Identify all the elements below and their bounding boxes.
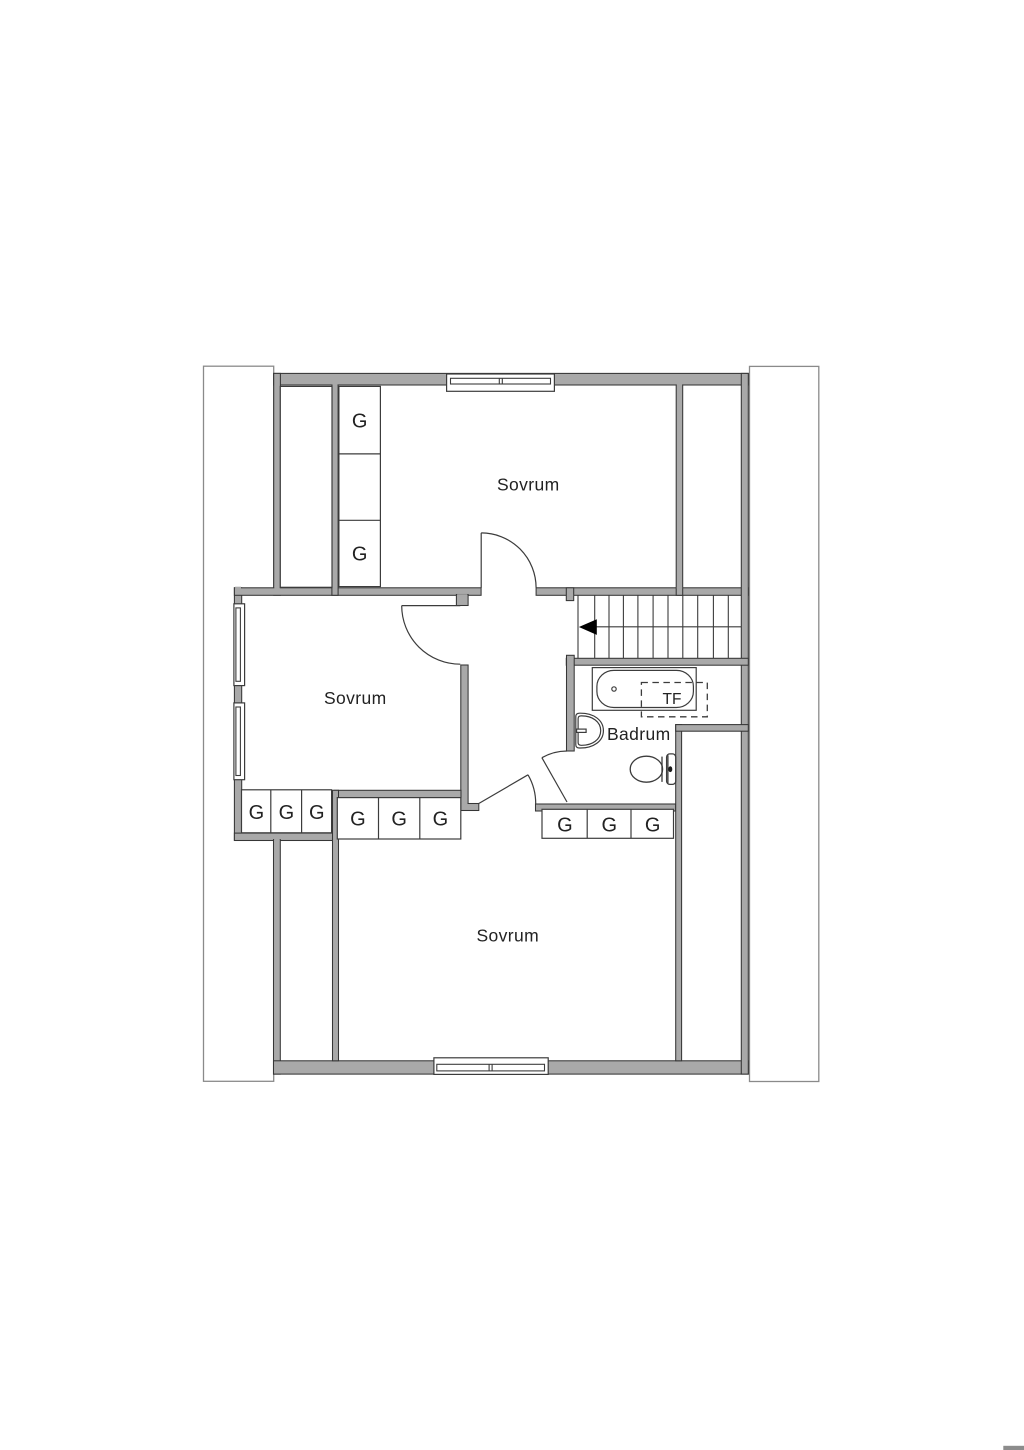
svg-text:G: G: [557, 814, 573, 836]
svg-text:Sovrum: Sovrum: [476, 925, 539, 945]
svg-text:G: G: [279, 802, 295, 824]
svg-text:G: G: [249, 802, 265, 824]
svg-text:G: G: [391, 808, 407, 830]
svg-text:Sovrum: Sovrum: [497, 474, 560, 494]
svg-text:G: G: [309, 802, 325, 824]
svg-text:G: G: [352, 543, 368, 565]
svg-text:G: G: [350, 808, 366, 830]
svg-text:G: G: [645, 814, 661, 836]
svg-text:TF: TF: [663, 691, 682, 708]
svg-text:G: G: [602, 814, 618, 836]
svg-text:Badrum: Badrum: [607, 724, 671, 744]
svg-text:G: G: [433, 808, 449, 830]
svg-text:G: G: [352, 410, 368, 432]
svg-text:Sovrum: Sovrum: [324, 688, 387, 708]
